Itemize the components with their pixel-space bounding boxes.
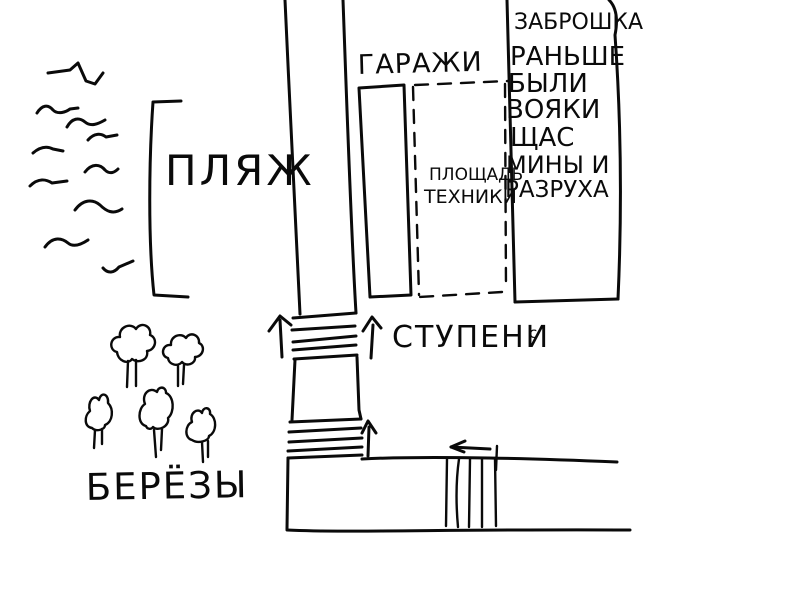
tree-trunk <box>94 430 95 448</box>
beach-outline <box>150 101 188 297</box>
up-arrow-lower-icon <box>362 421 376 456</box>
stairs-label: СТУПЕНИ <box>392 320 550 355</box>
wave-icon <box>75 201 122 212</box>
tree-icon <box>163 334 203 386</box>
up-arrow-right-icon <box>363 317 381 358</box>
road-edge <box>292 360 295 420</box>
equipment-area-border <box>413 87 419 295</box>
abandoned-text-line: МИНЫ И <box>506 151 609 179</box>
road-edge <box>287 458 288 529</box>
road-edge <box>362 458 617 462</box>
upper-stairs <box>292 313 357 359</box>
arrow-shaft <box>371 325 373 358</box>
abandoned-outline <box>515 299 618 302</box>
abandoned-text-line: РАНЬШЕ <box>510 42 625 72</box>
crosswalk-stripe <box>496 446 497 470</box>
step-line <box>289 428 361 432</box>
step-line <box>293 313 356 318</box>
water-waves <box>30 63 133 272</box>
arrow-shaft <box>280 320 282 357</box>
tree-trunk <box>161 429 162 450</box>
arrow-shaft <box>368 427 369 456</box>
abandoned-text-line: ВОЯКИ <box>506 95 600 125</box>
tree-crown <box>186 408 215 442</box>
stairs-label-group: СТУПЕНИ с <box>392 320 550 355</box>
birch-grove: БЕРЁЗЫ <box>85 325 249 509</box>
left-arrow-icon <box>451 441 490 452</box>
abandoned-text-line: ЗАБРОШКА <box>514 10 643 35</box>
tree-crown <box>111 325 155 362</box>
tree-icon <box>86 395 112 448</box>
abandoned-text-line: ЩАС <box>510 123 574 153</box>
step-line <box>294 355 357 359</box>
road-edge <box>343 0 356 313</box>
crosswalk-stripe <box>457 459 459 527</box>
wave-icon <box>45 239 88 247</box>
wave-icon <box>33 147 63 153</box>
wave-icon <box>48 63 103 84</box>
garages-label: ГАРАЖИ <box>357 47 483 81</box>
garage-building <box>359 85 411 297</box>
step-line <box>289 438 362 442</box>
tree-trunk <box>202 442 203 462</box>
abandoned-text-line: РАЗРУХА <box>505 177 609 203</box>
stairs-label-superscript: с <box>529 324 537 342</box>
step-line <box>293 336 356 342</box>
equipment-area-border <box>415 81 508 85</box>
tree-icon <box>140 388 173 457</box>
step-line <box>293 345 356 350</box>
tree-trunk <box>127 361 128 387</box>
step-line <box>288 447 362 451</box>
tree-crown <box>140 388 173 429</box>
step-line <box>288 455 362 458</box>
tree-crown <box>86 395 112 431</box>
tree-trunk <box>154 430 156 457</box>
tree-crown <box>163 334 203 364</box>
equipment-area-label-line2: ТЕХНИКИ <box>423 186 517 208</box>
tree-trunk <box>183 365 184 384</box>
equipment-area-border <box>419 292 502 297</box>
step-line <box>292 326 355 330</box>
wave-icon <box>67 119 105 127</box>
up-arrow-left-icon <box>269 316 291 357</box>
birches-label: БЕРЁЗЫ <box>85 463 249 509</box>
tree-icon <box>111 325 155 387</box>
lower-stairs <box>288 419 362 458</box>
crosswalk-stripe <box>446 459 447 526</box>
wave-icon <box>103 261 133 272</box>
wave-icon <box>37 106 78 113</box>
road-edge <box>357 357 361 419</box>
wave-icon <box>88 134 117 140</box>
crosswalk-stripe <box>469 459 470 527</box>
tree-icon <box>186 408 215 462</box>
wave-icon <box>30 180 67 186</box>
hand-drawn-map: ПЛЯЖ СТУПЕНИ с <box>0 0 800 600</box>
abandoned-area: ЗАБРОШКА РАНЬШЕ БЫЛИ ВОЯКИ ЩАС МИНЫ И РА… <box>505 0 643 302</box>
wave-icon <box>85 165 118 172</box>
step-line <box>290 419 361 422</box>
road-edge <box>287 530 630 531</box>
